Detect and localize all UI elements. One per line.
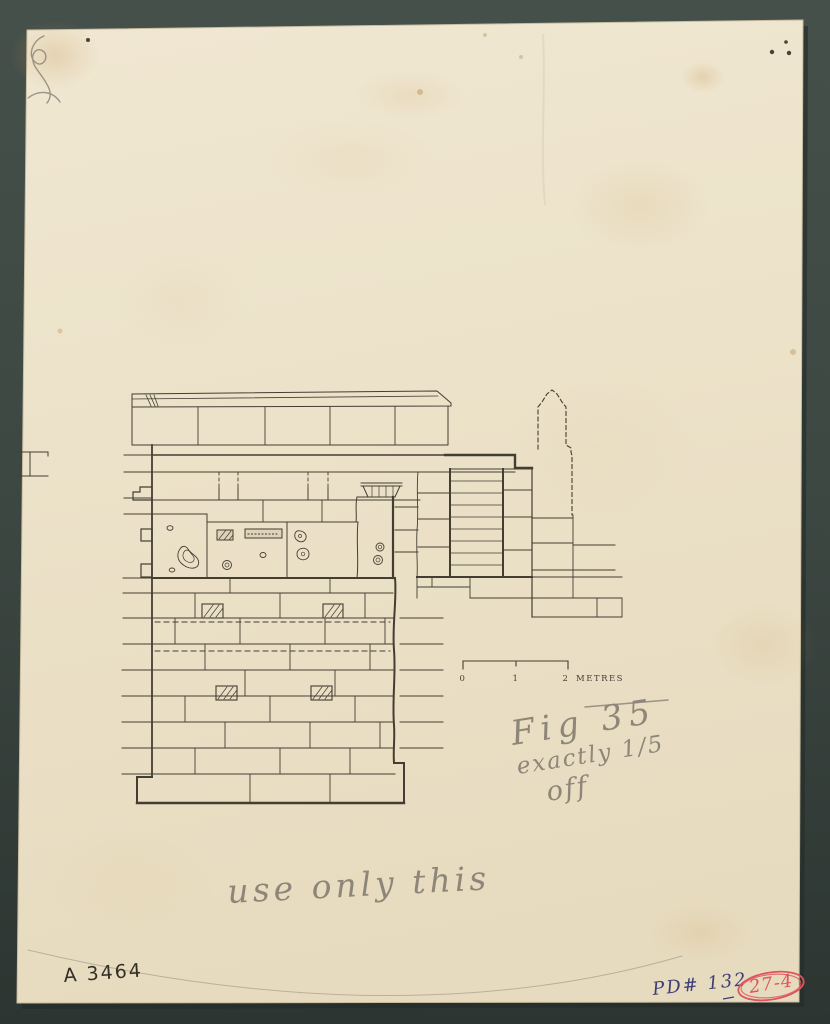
foxing-spot	[519, 55, 523, 59]
foxing-spot	[58, 329, 63, 334]
stain	[265, 118, 435, 202]
foxing-spot	[483, 33, 487, 37]
pin-hole	[86, 38, 90, 42]
scale-unit-label: METRES	[576, 674, 624, 684]
stain	[570, 157, 710, 253]
pin-hole	[784, 40, 788, 44]
stain	[708, 603, 818, 687]
stain	[355, 70, 465, 120]
scale-label-2: 2	[563, 674, 570, 684]
foxing-spot	[417, 89, 423, 95]
stain	[681, 61, 725, 93]
stain	[648, 903, 752, 963]
scale-label-0: 0	[460, 674, 467, 684]
stain	[40, 820, 220, 940]
archival-photo: 0 1 2 METRES Fig 35 exactly 1/5 off use …	[0, 0, 830, 1024]
pin-hole	[787, 51, 791, 55]
stain	[505, 375, 695, 525]
big-row-joint-wavy	[357, 522, 358, 578]
stain	[115, 245, 245, 355]
scale-label-1: 1	[513, 674, 520, 684]
foxing-spot	[790, 349, 796, 355]
pin-hole	[770, 50, 774, 54]
stain	[10, 20, 100, 90]
scanned-drawing-sheet: 0 1 2 METRES Fig 35 exactly 1/5 off use …	[0, 0, 830, 1024]
